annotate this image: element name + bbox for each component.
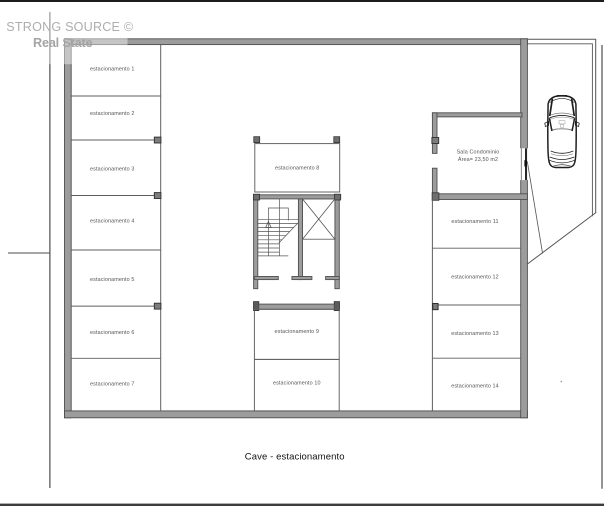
svg-text:estacionamento 2: estacionamento 2 bbox=[90, 111, 134, 117]
svg-text:estacionamento 1: estacionamento 1 bbox=[90, 66, 134, 72]
svg-text:estacionamento 4: estacionamento 4 bbox=[90, 219, 134, 225]
svg-text:STRONG SOURCE ©: STRONG SOURCE © bbox=[6, 20, 134, 34]
svg-text:estacionamento 6: estacionamento 6 bbox=[90, 330, 134, 336]
svg-text:estacionamento 12: estacionamento 12 bbox=[451, 274, 499, 280]
svg-text:estacionamento 10: estacionamento 10 bbox=[273, 381, 321, 387]
svg-text:Sala Condominio: Sala Condominio bbox=[457, 149, 500, 155]
svg-text:estacionamento 8: estacionamento 8 bbox=[275, 165, 319, 171]
svg-text:estacionamento 9: estacionamento 9 bbox=[275, 329, 319, 335]
svg-text:Área= 23,50 m2: Área= 23,50 m2 bbox=[458, 156, 498, 163]
svg-text:Real State: Real State bbox=[33, 36, 92, 50]
svg-text:estacionamento 14: estacionamento 14 bbox=[451, 384, 499, 390]
svg-text:estacionamento 3: estacionamento 3 bbox=[90, 166, 134, 172]
svg-text:estacionamento 13: estacionamento 13 bbox=[451, 331, 499, 337]
svg-text:Cave - estacionamento: Cave - estacionamento bbox=[245, 451, 345, 462]
svg-text:estacionamento 5: estacionamento 5 bbox=[90, 277, 134, 283]
svg-text:estacionamento 7: estacionamento 7 bbox=[90, 382, 134, 388]
svg-text:estacionamento 11: estacionamento 11 bbox=[451, 219, 498, 225]
